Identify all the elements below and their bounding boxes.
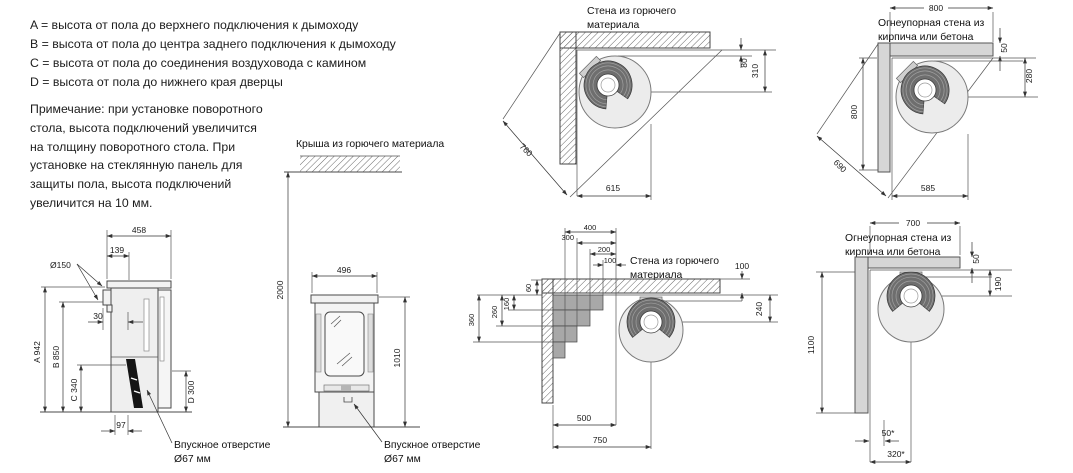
dim-260-label: 260 (490, 306, 499, 319)
stove-top-view (619, 297, 683, 362)
dim-160-label: 160 (502, 298, 511, 311)
rear-flue-collar (103, 290, 111, 305)
inlet-label: Впускное отверстие (384, 440, 481, 451)
firewall-horizontal (855, 257, 960, 268)
dim-690-label: 690 (832, 157, 849, 174)
dim-2000-label: 2000 (275, 280, 285, 299)
stove-side-view: 458 139 Ø150 30 A 942 B 850 C 340 D 300 … (32, 225, 271, 465)
inlet-diameter-label: Ø67 мм (174, 454, 211, 465)
combustible-wall-hatch-horizontal (560, 32, 710, 48)
dim-c-label: C 340 (69, 378, 79, 401)
dim-700-label: 700 (906, 218, 920, 228)
dim-585-label: 585 (921, 183, 935, 193)
flue-diameter-label: Ø150 (50, 260, 71, 270)
firewall-horizontal (878, 43, 993, 56)
dim-615-label: 615 (606, 183, 620, 193)
wall-material-label-line2: материала (587, 20, 640, 31)
dim-1010-label: 1010 (392, 348, 402, 367)
dim-750-label: 750 (593, 435, 607, 445)
stepped-shield-diagram: Стена из горючего материала (467, 223, 778, 449)
dim-190-label: 190 (993, 277, 1003, 291)
dim-500-label: 500 (577, 413, 591, 423)
dim-300-label: 300 (561, 233, 574, 242)
dim-139-label: 139 (110, 245, 124, 255)
flue-outlet (597, 74, 619, 96)
corner-combustible-diagram: Стена из горючего материала (503, 6, 776, 200)
inlet-diameter-label: Ø67 мм (384, 454, 421, 465)
dim-800-left-label: 800 (849, 105, 859, 119)
dim-80-label: 80 (739, 58, 749, 68)
glass-door (325, 312, 364, 376)
dim-50-label: 50 (999, 43, 1009, 53)
firewall-label-line2: кирпича или бетона (878, 31, 974, 43)
flue-outlet (900, 285, 922, 307)
dim-496-label: 496 (337, 265, 351, 275)
corner-firewall-800-diagram: 800 Огнеупорная стена из кирпича или бет… (817, 3, 1038, 200)
combustible-roof-hatch (300, 156, 400, 172)
dim-50-star-label: 50* (882, 428, 895, 438)
door-handle (341, 385, 351, 391)
front-view-stove-body (311, 295, 378, 427)
dim-310-label: 310 (750, 64, 760, 78)
stove-front-view: Крыша из горючего материала (275, 139, 481, 465)
stove-top-view (896, 61, 968, 133)
pedestal (319, 392, 374, 427)
firewall-vertical (878, 43, 890, 172)
flue-outlet (640, 311, 662, 333)
firewall-label-line1: Огнеупорная стена из (878, 18, 985, 29)
dim-458-label: 458 (132, 225, 146, 235)
roof-material-label: Крыша из горючего материала (296, 139, 444, 150)
dim-1100-label: 1100 (806, 336, 816, 355)
stove-top-view (579, 56, 651, 128)
inlet-label: Впускное отверстие (174, 440, 271, 451)
stove-top-view (878, 272, 944, 342)
wall-material-label-line1: Стена из горючего (630, 256, 719, 267)
shield-steps (553, 295, 603, 358)
corner-firewall-700-diagram: 700 Огнеупорная стена из кирпича или бет… (806, 218, 1012, 462)
dim-a-label: A 942 (32, 341, 42, 363)
dim-wall-100-label: 100 (735, 261, 749, 271)
firewall-label-line1: Огнеупорная стена из (845, 233, 952, 244)
dim-280-label: 280 (1024, 69, 1034, 83)
dim-97-label: 97 (116, 420, 126, 430)
dim-320-star-label: 320* (887, 449, 905, 459)
manual-page: A = высота от пола до верхнего подключен… (0, 0, 1073, 473)
dim-d-label: D 300 (186, 380, 196, 403)
firewall-vertical (855, 257, 868, 413)
dim-760-label: 760 (518, 141, 535, 158)
dim-800-top-label: 800 (929, 3, 943, 13)
wall-material-label-line1: Стена из горючего (587, 6, 676, 17)
flue-outlet (914, 79, 936, 101)
dim-200-label: 200 (598, 245, 611, 254)
dim-100-label: 100 (604, 256, 617, 265)
dim-360-label: 360 (467, 314, 476, 327)
combustible-wall-hatch-vertical (560, 32, 576, 164)
dim-240-label: 240 (754, 302, 764, 316)
firewall-label-line2: кирпича или бетона (845, 246, 941, 258)
dim-60-label: 60 (524, 284, 533, 292)
dim-50-label: 50 (971, 254, 981, 264)
dim-400-label: 400 (584, 223, 597, 232)
dim-b-label: B 850 (51, 346, 61, 368)
combustible-wall-hatch-horizontal (542, 279, 720, 293)
combustible-wall-hatch-vertical (542, 279, 553, 403)
dim-30-label: 30 (93, 311, 103, 321)
technical-drawings: 458 139 Ø150 30 A 942 B 850 C 340 D 300 … (0, 0, 1073, 473)
